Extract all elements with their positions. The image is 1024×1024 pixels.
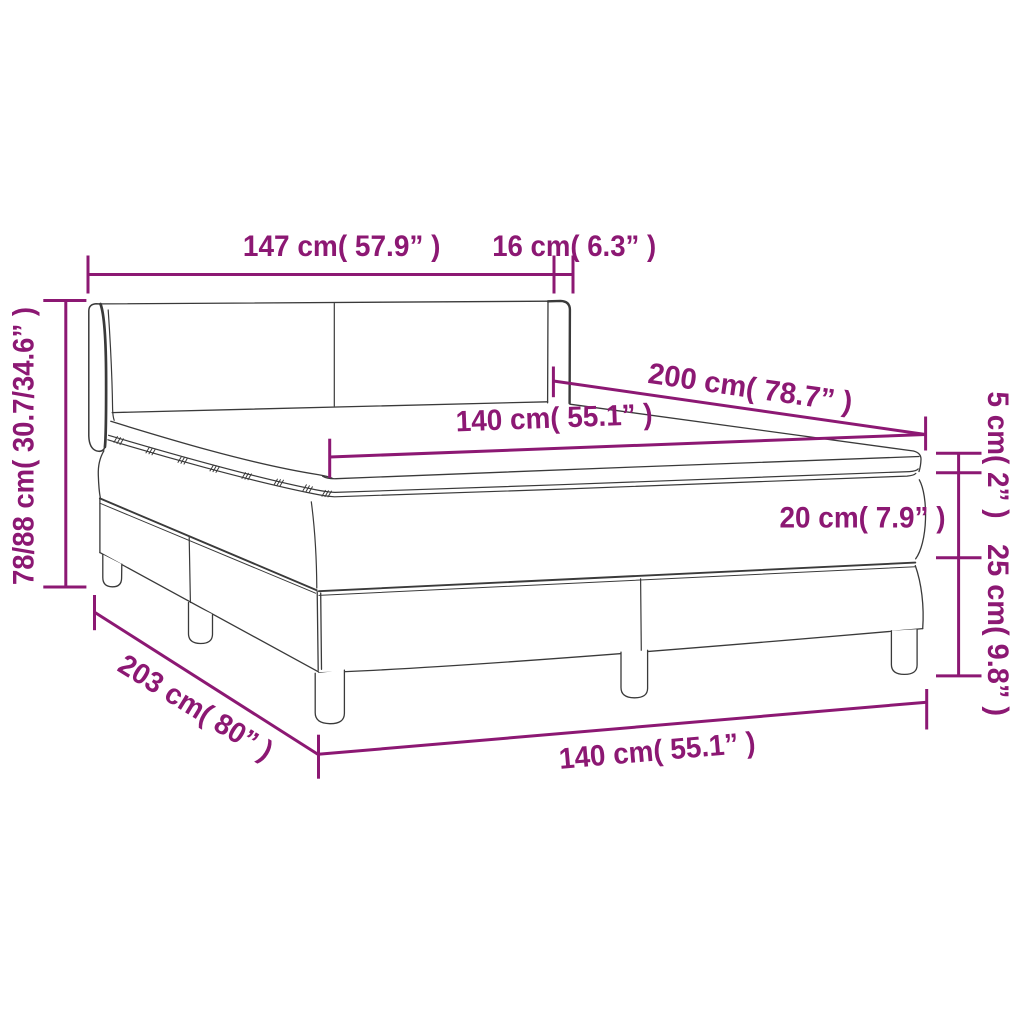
- svg-text:5 cm( 2” ): 5 cm( 2” ): [981, 392, 1014, 519]
- svg-text:78/88 cm( 30.7/34.6” ): 78/88 cm( 30.7/34.6” ): [8, 307, 41, 585]
- svg-text:20 cm( 7.9” ): 20 cm( 7.9” ): [780, 502, 946, 535]
- svg-text:147 cm( 57.9” ): 147 cm( 57.9” ): [243, 230, 441, 263]
- svg-text:16 cm( 6.3” ): 16 cm( 6.3” ): [492, 230, 656, 263]
- svg-text:25 cm( 9.8” ): 25 cm( 9.8” ): [981, 544, 1014, 716]
